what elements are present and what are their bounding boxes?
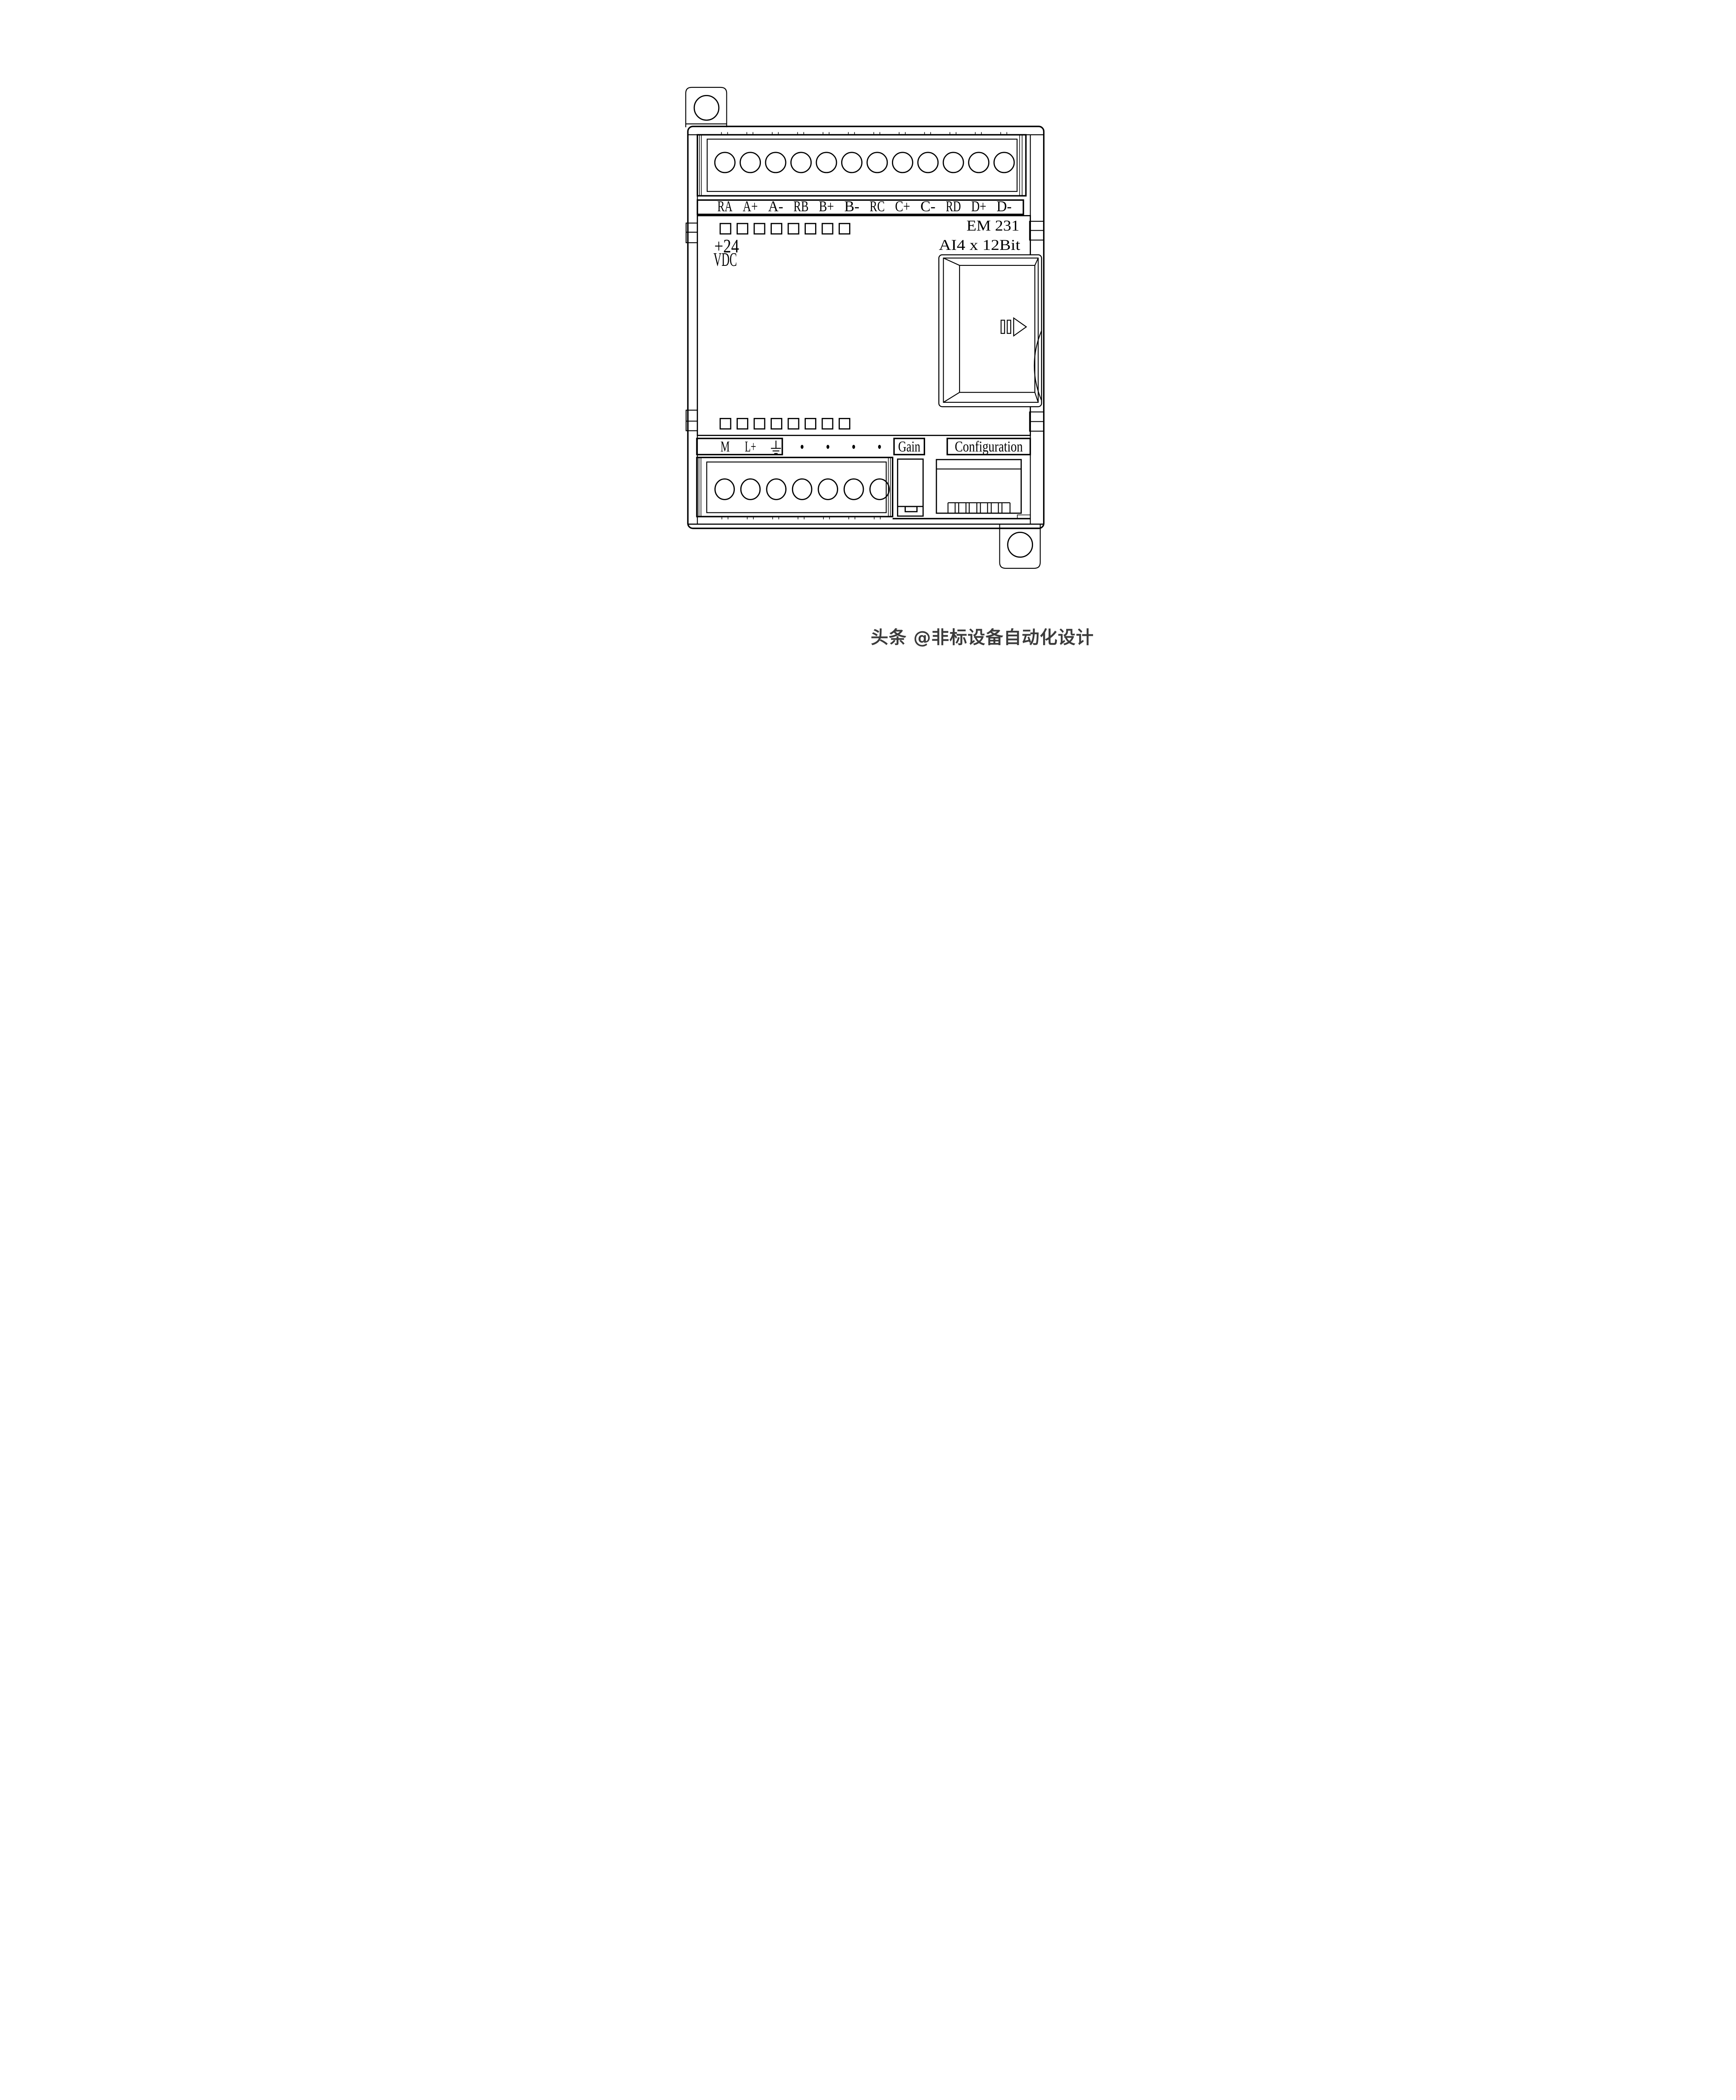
status-led-row-bottom [720,419,850,429]
terminal-label-top: B- [844,198,859,215]
terminal-screw-bottom [767,479,786,499]
module-model-text: EM 231 [967,217,1020,234]
terminal-label-top: D- [996,198,1012,215]
mounting-tab-outline [1000,524,1041,568]
led-indicator-square [839,419,850,429]
terminal-label-top: C- [920,198,936,215]
top-terminal-block [698,135,1026,196]
terminal-label-m: M [721,438,730,455]
gain-pot-notch [905,507,917,512]
led-indicator-square [754,223,765,234]
configuration-connector-body [936,459,1021,513]
terminal-screw-top [969,152,989,173]
led-indicator-square [771,223,782,234]
terminal-label-lplus: L+ [745,438,756,455]
terminal-screw-bottom [715,479,734,499]
terminal-label-top: RD [946,198,961,215]
bottom-label-band: M L+ Gain Configuration [697,438,1030,455]
power-label-line2: VDC [713,249,737,270]
door-outer-frame [939,255,1042,407]
terminal-label-top: RC [870,198,885,215]
terminal-label-top: D+ [971,198,986,215]
terminal-label-top: RA [717,198,732,215]
configuration-label: Configuration [955,438,1023,455]
drawing-page: RAA+A-RBB+B-RCC+C-RDD+D- +24 VDC EM 231 … [637,0,1099,654]
led-indicator-square [771,419,782,429]
bottom-terminal-block [697,457,892,517]
gain-potentiometer [898,459,923,516]
terminal-screw-bottom [818,479,838,499]
led-indicator-square [720,223,731,234]
terminal-screw-top [842,152,862,173]
terminal-dot [801,445,804,449]
terminal-label-top: B+ [819,198,834,215]
gain-label: Gain [898,438,920,455]
led-indicator-square [788,419,799,429]
terminal-screw-top [892,152,913,173]
watermark-text: 头条 @非标设备自动化设计 [871,627,1094,648]
led-indicator-square [754,419,765,429]
configuration-connector [936,459,1021,513]
terminal-screw-top [943,152,963,173]
led-indicator-square [788,223,799,234]
led-indicator-square [737,419,748,429]
led-indicator-square [822,223,833,234]
mounting-tab-bottom-right [1000,524,1041,568]
power-terminal-label-box [697,438,782,455]
terminal-label-top: A- [768,198,783,215]
led-indicator-square [720,419,731,429]
status-led-row-top [720,223,850,234]
terminal-label-top: C+ [895,198,910,215]
terminal-screw-top [740,152,760,173]
mounting-hole-bottom [1008,533,1033,557]
terminal-dot [852,445,855,449]
terminal-screw-top [816,152,837,173]
terminal-screw-top [766,152,786,173]
led-indicator-square [805,223,816,234]
gain-pot-body [898,459,923,516]
top-terminal-label-row: RAA+A-RBB+B-RCC+C-RDD+D- [698,198,1023,215]
module-spec-text: AI4 x 12Bit [939,236,1020,253]
led-indicator-square [737,223,748,234]
earth-ground-icon [771,441,781,454]
top-terminal-screws [715,152,1014,173]
mounting-tab-outline [686,87,726,127]
terminal-label-top: A+ [743,198,758,215]
terminal-dot [826,445,829,449]
terminal-screw-bottom [844,479,863,499]
terminal-screw-top [791,152,811,173]
led-indicator-square [805,419,816,429]
unlabeled-terminal-dots [801,445,881,449]
terminal-screw-top [994,152,1014,173]
terminal-screw-top [867,152,887,173]
terminal-screw-top [715,152,735,173]
top-terminal-block-inner [707,139,1017,192]
terminal-dot [878,445,881,449]
led-indicator-square [822,419,833,429]
connector-pin-comb [948,503,1010,513]
led-indicator-square [839,223,850,234]
terminal-screw-top [918,152,938,173]
terminal-label-top: RB [794,198,809,215]
mounting-tab-top-left [686,87,726,127]
terminal-screw-bottom [792,479,812,499]
mounting-hole-top [694,95,719,120]
expansion-port-door [939,255,1042,407]
terminal-screw-bottom [741,479,760,499]
bottom-terminal-screws [715,479,889,499]
